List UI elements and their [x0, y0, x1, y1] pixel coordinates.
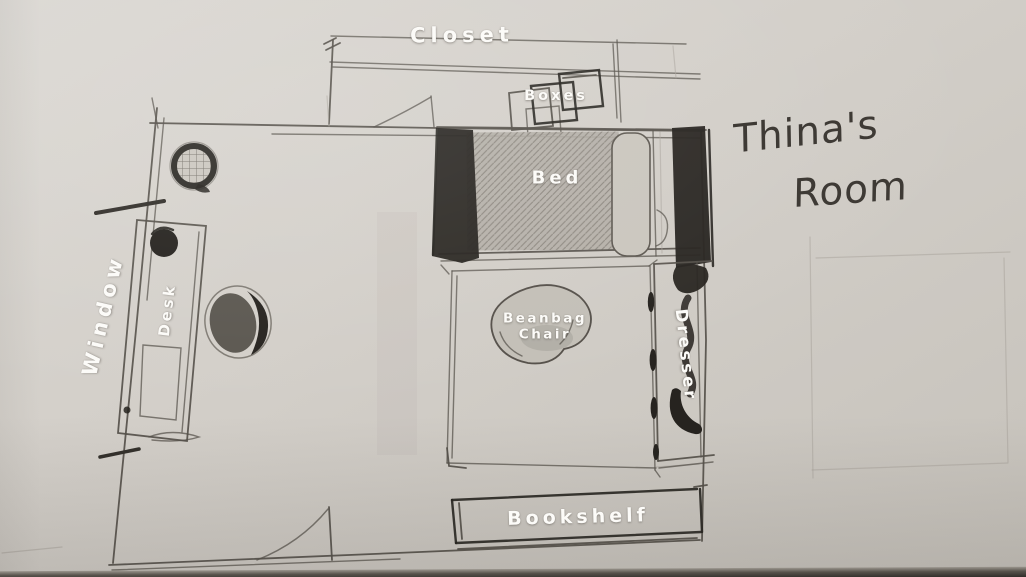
closet-door-arc: [327, 96, 434, 127]
ghost-lines: [810, 237, 1010, 478]
bed-post-right: [672, 126, 711, 268]
boxes-label: Boxes: [524, 88, 588, 104]
bed-label: Bed: [532, 168, 583, 189]
desk-drawer: [140, 345, 181, 420]
beanbag-label-line1: Beanbag: [503, 310, 587, 326]
bed-post-left: [432, 128, 479, 263]
eraser-smudge: [377, 212, 417, 455]
bed-pillow: [612, 133, 650, 256]
desk-chair-sketch: [199, 281, 276, 363]
bookshelf-label: Bookshelf: [507, 504, 649, 530]
beanbag-chair-label: Beanbag Chair: [490, 311, 600, 342]
beanbag-label-line2: Chair: [519, 326, 571, 342]
bed-sketch: [432, 126, 713, 268]
room-title-line2: Room: [793, 164, 909, 217]
closet-sketch: [324, 36, 700, 127]
room-door-arc: [257, 507, 332, 560]
closet-label: Closet: [410, 23, 514, 48]
pencil-sketch-layer: [0, 0, 1026, 577]
waste-bin-sketch: [170, 142, 218, 193]
floor-plan-photo: Closet Boxes Bed Window Desk Beanbag Cha…: [0, 0, 1026, 577]
